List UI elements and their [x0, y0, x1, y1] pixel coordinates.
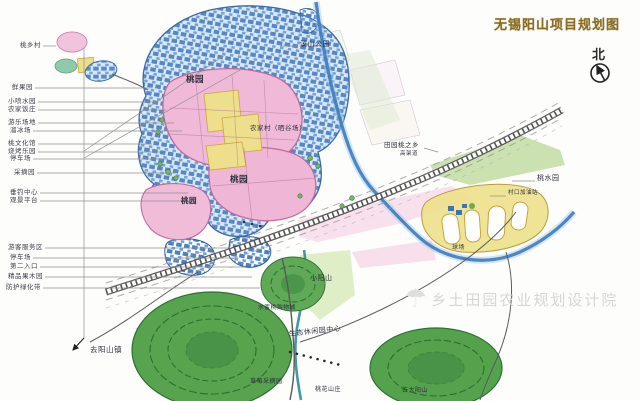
north-label: 北	[592, 44, 605, 63]
northwest-hamlet	[55, 32, 118, 84]
exit-arrow	[73, 338, 84, 350]
compass-icon	[591, 64, 609, 82]
resort-area	[422, 184, 548, 252]
dotted-trail	[290, 352, 344, 366]
hill-xiaoyangshan	[132, 292, 292, 401]
map-title: 无锡阳山项目规划图	[494, 14, 620, 33]
hill-dayangshan	[370, 328, 502, 401]
planning-map: 无锡阳山项目规划图 北 ☂ 乡土田园农业规划设计院 桃乡村鲜果园小喷水园农家饭庄…	[0, 0, 640, 401]
hill-small	[261, 257, 325, 311]
map-drawing	[0, 0, 640, 401]
